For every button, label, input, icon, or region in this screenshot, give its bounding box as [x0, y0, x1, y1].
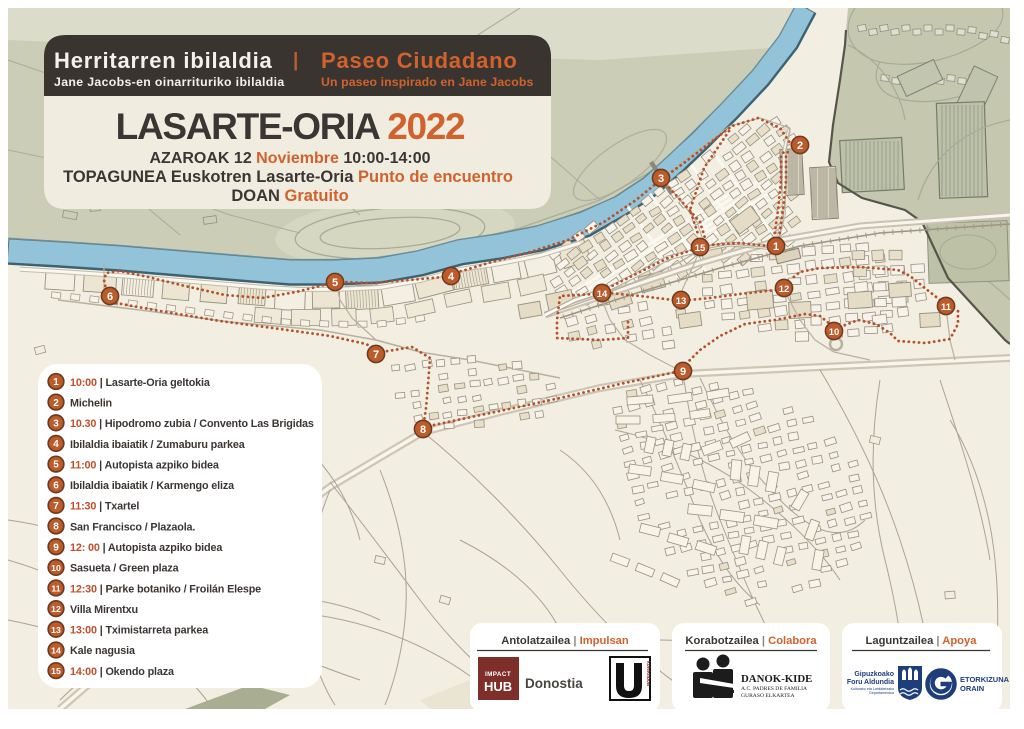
- svg-text:Laguntzailea | Apoya: Laguntzailea | Apoya: [866, 635, 978, 647]
- svg-text:IMPACT: IMPACT: [485, 671, 511, 678]
- svg-text:Un paseo inspirado en Jane Jac: Un paseo inspirado en Jane Jacobs: [321, 75, 533, 89]
- svg-text:TOPAGUNEA Euskotren Lasarte-Or: TOPAGUNEA Euskotren Lasarte-Oria Punto d…: [63, 168, 513, 186]
- svg-text:3: 3: [658, 173, 664, 185]
- svg-text:ETORKIZUNA: ETORKIZUNA: [960, 675, 1010, 684]
- svg-text:2: 2: [797, 140, 803, 152]
- svg-text:Ibilaldia ibaiatik / Karmengo: Ibilaldia ibaiatik / Karmengo eliza: [70, 480, 235, 492]
- svg-text:13: 13: [676, 296, 687, 307]
- svg-text:11: 11: [51, 584, 60, 594]
- svg-text:San Francisco / Plazaola.: San Francisco / Plazaola.: [70, 521, 195, 533]
- svg-text:2: 2: [53, 398, 59, 409]
- svg-text:10.30 | Hipodromo zubia / Conv: 10.30 | Hipodromo zubia / Convento Las B…: [70, 418, 314, 430]
- svg-text:9: 9: [53, 542, 59, 553]
- svg-text:14: 14: [51, 646, 61, 656]
- svg-text:6: 6: [107, 291, 113, 303]
- svg-text:ORAIN: ORAIN: [960, 684, 984, 693]
- svg-text:Michelin: Michelin: [70, 397, 112, 409]
- svg-text:DANOK-KIDE: DANOK-KIDE: [741, 673, 812, 685]
- svg-text:10: 10: [51, 563, 61, 573]
- svg-text:Korabotzailea | Colabora: Korabotzailea | Colabora: [685, 635, 817, 647]
- svg-text:3: 3: [53, 418, 59, 429]
- svg-text:GURASO ELKARTEA: GURASO ELKARTEA: [741, 693, 795, 699]
- svg-text:|: |: [293, 50, 298, 71]
- svg-text:14:00 | Okendo plaza: 14:00 | Okendo plaza: [70, 666, 175, 678]
- svg-text:10:00 | Lasarte-Oria geltokia: 10:00 | Lasarte-Oria geltokia: [70, 377, 211, 389]
- svg-text:5: 5: [332, 277, 338, 289]
- svg-text:12: 12: [779, 284, 790, 295]
- svg-text:Jane Jacobs-en oinarrituriko i: Jane Jacobs-en oinarrituriko ibilaldia: [54, 75, 285, 89]
- svg-text:11:30 | Txartel: 11:30 | Txartel: [70, 501, 139, 513]
- svg-text:A.C. PADRES DE FAMILIA: A.C. PADRES DE FAMILIA: [741, 686, 807, 692]
- svg-text:14: 14: [597, 289, 608, 300]
- svg-text:Herritarren ibilaldia: Herritarren ibilaldia: [54, 48, 273, 73]
- svg-text:1: 1: [773, 241, 779, 253]
- svg-text:Departamentua: Departamentua: [869, 691, 894, 695]
- svg-text:Villa Mirentxu: Villa Mirentxu: [70, 604, 138, 616]
- svg-text:6: 6: [53, 480, 59, 491]
- svg-text:AZAROAK 12 Noviembre 10:00-14:: AZAROAK 12 Noviembre 10:00-14:00: [149, 150, 430, 167]
- svg-text:13: 13: [51, 625, 61, 635]
- svg-text:15: 15: [51, 666, 61, 676]
- svg-text:5: 5: [53, 460, 59, 471]
- svg-text:15: 15: [695, 243, 706, 254]
- svg-text:Sasueta / Green plaza: Sasueta / Green plaza: [70, 563, 180, 575]
- svg-text:11: 11: [941, 302, 952, 313]
- svg-text:7: 7: [373, 349, 379, 361]
- svg-text:Antolatzailea | Impulsan: Antolatzailea | Impulsan: [501, 635, 629, 647]
- svg-text:kolektiboa: kolektiboa: [645, 661, 651, 686]
- svg-text:Kale nagusia: Kale nagusia: [70, 645, 136, 657]
- svg-text:12:30 | Parke botaniko / Froil: 12:30 | Parke botaniko / Froilán Elespe: [70, 583, 261, 595]
- svg-text:11:00 | Autopista azpiko bidea: 11:00 | Autopista azpiko bidea: [70, 459, 220, 471]
- svg-text:12: 00 | Autopista azpiko bide: 12: 00 | Autopista azpiko bidea: [70, 542, 223, 554]
- svg-text:Ibilaldia ibaiatik / Zumaburu: Ibilaldia ibaiatik / Zumaburu parkea: [70, 439, 246, 451]
- svg-text:DOAN Gratuito: DOAN Gratuito: [231, 187, 348, 205]
- svg-text:8: 8: [53, 522, 59, 533]
- svg-text:1: 1: [53, 377, 59, 388]
- svg-text:Gipuzkoako: Gipuzkoako: [854, 671, 894, 678]
- svg-text:12: 12: [51, 604, 61, 614]
- svg-text:Donostia: Donostia: [525, 676, 583, 691]
- svg-text:4: 4: [53, 439, 59, 450]
- svg-text:10: 10: [829, 327, 840, 338]
- svg-text:Paseo Ciudadano: Paseo Ciudadano: [321, 48, 518, 73]
- svg-text:4: 4: [448, 271, 455, 283]
- svg-text:LASARTE-ORIA 2022: LASARTE-ORIA 2022: [116, 106, 465, 147]
- svg-text:Foru Aldundia: Foru Aldundia: [847, 679, 894, 686]
- svg-text:HUB: HUB: [484, 679, 512, 694]
- svg-text:13:00 | Tximistarreta parkea: 13:00 | Tximistarreta parkea: [70, 625, 209, 637]
- svg-text:7: 7: [53, 501, 59, 512]
- svg-text:8: 8: [420, 424, 426, 436]
- svg-text:9: 9: [680, 366, 686, 378]
